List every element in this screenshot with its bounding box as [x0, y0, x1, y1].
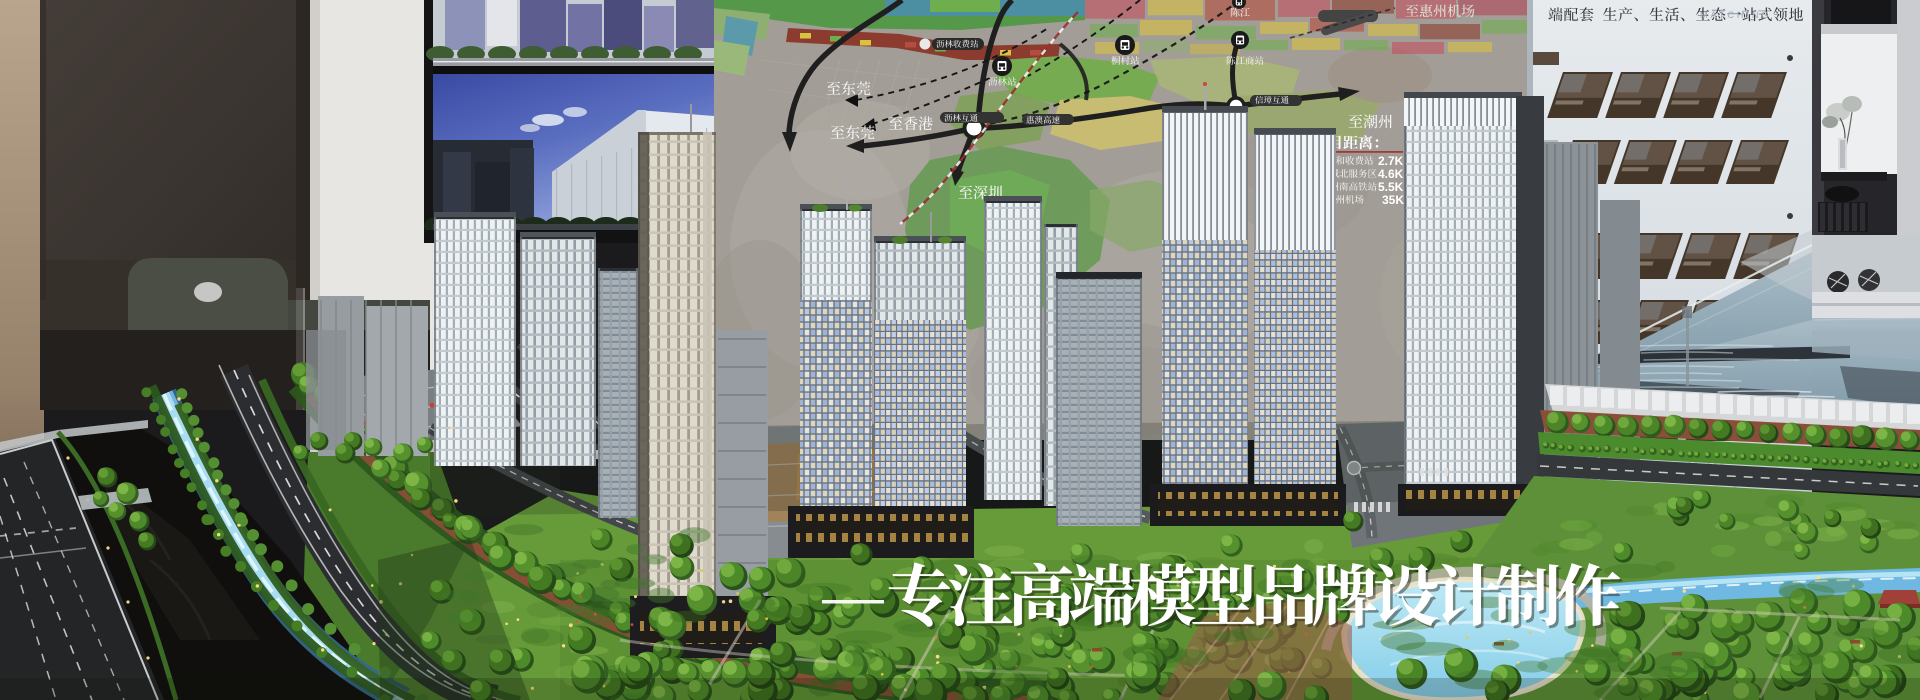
- svg-text:MATCHING: MATCHING: [1700, 10, 1771, 20]
